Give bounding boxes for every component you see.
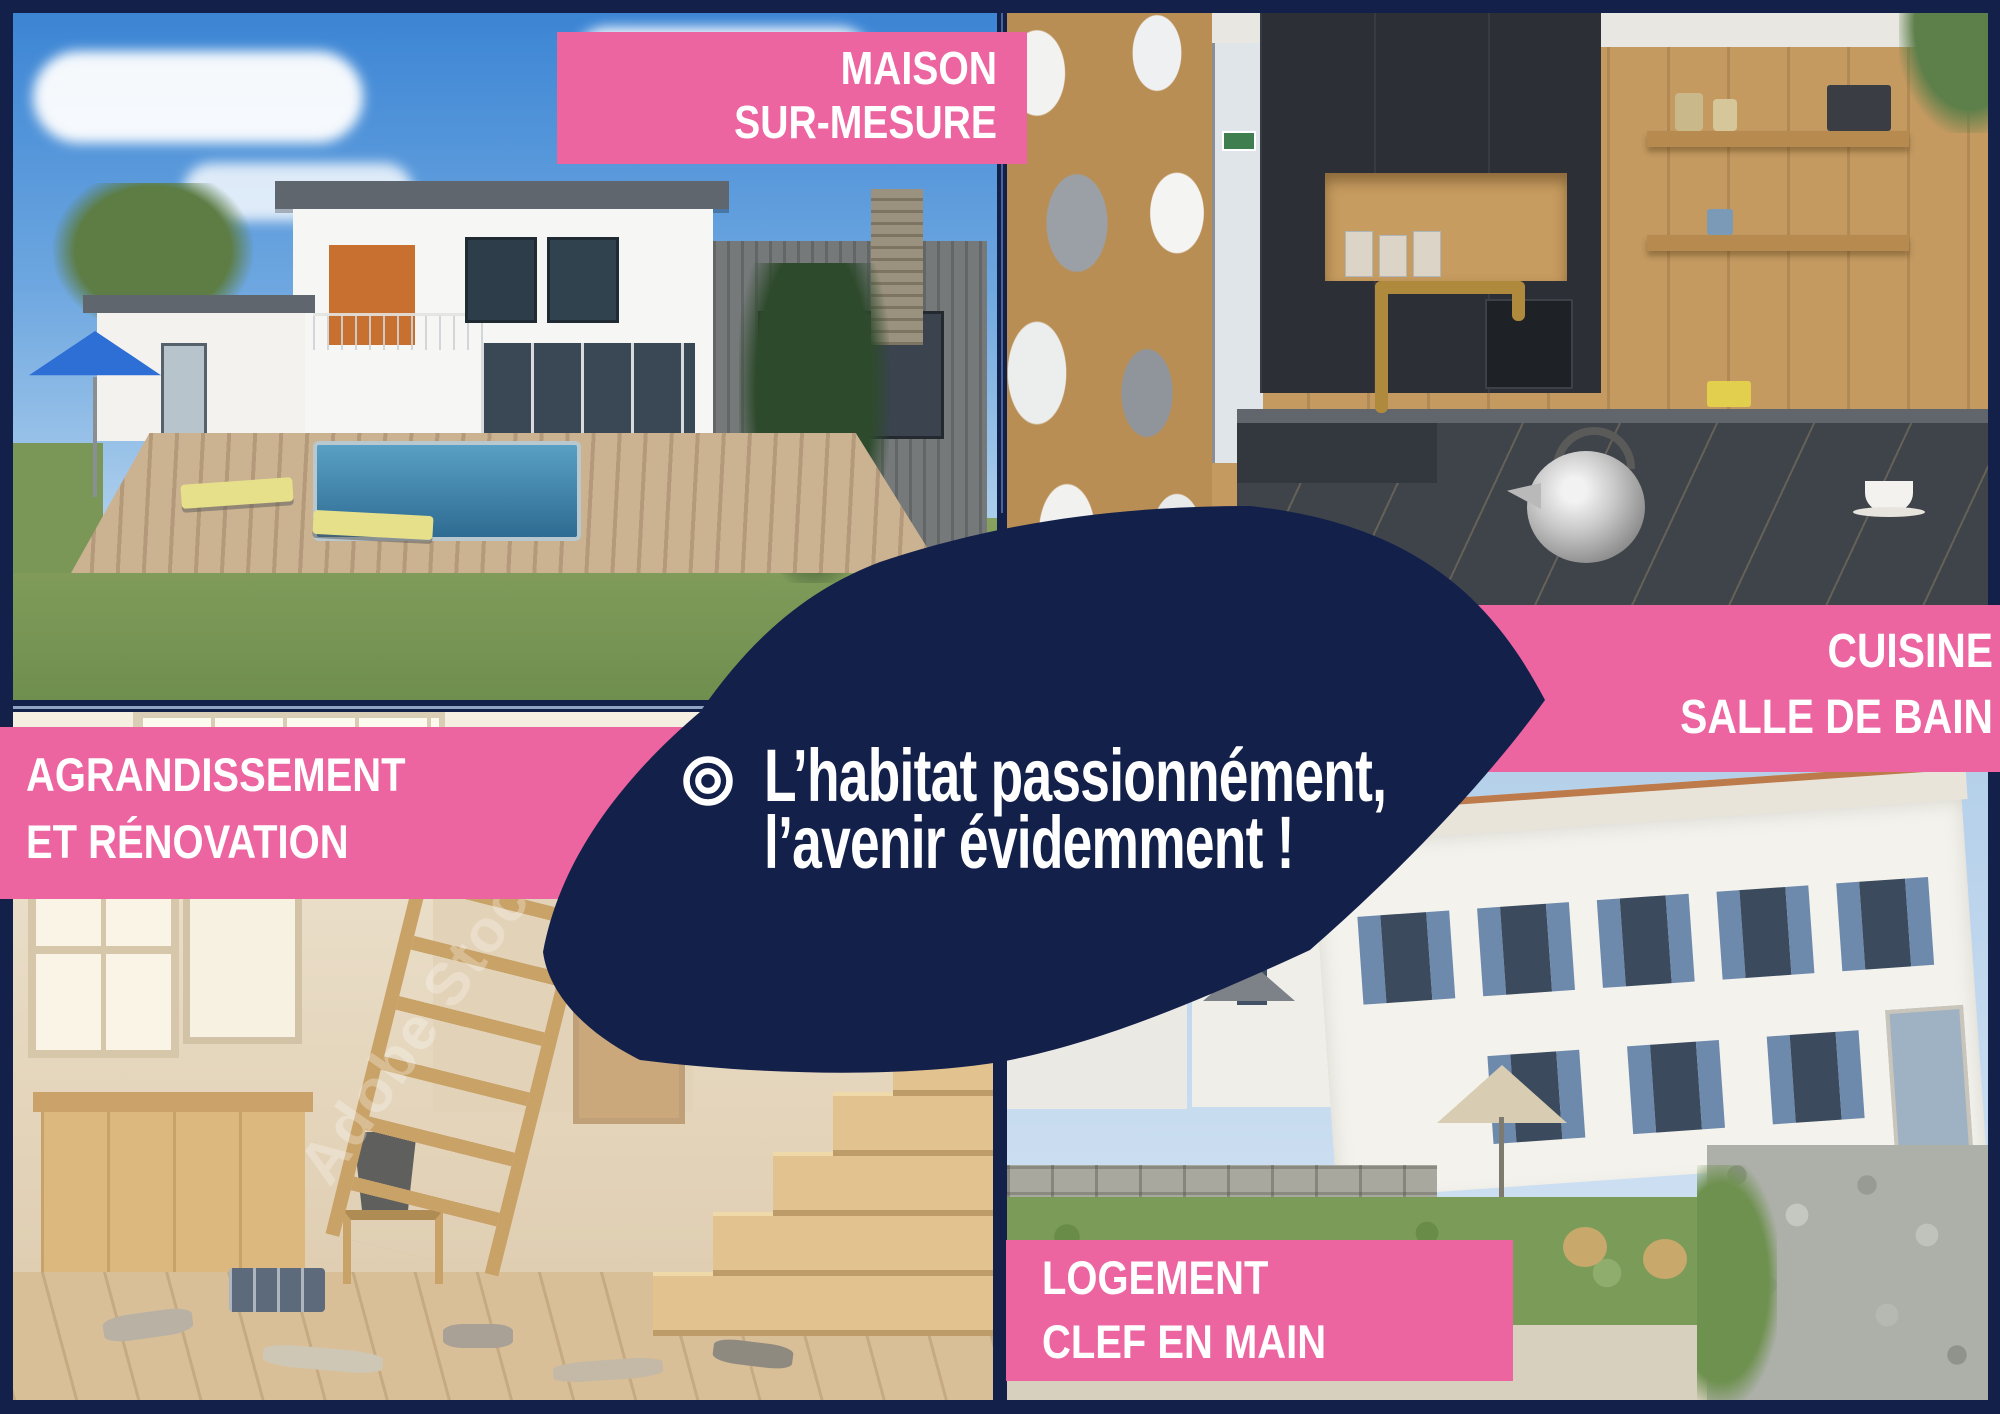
glass-door [1885,1005,1974,1168]
shuttered-window [1357,910,1455,1004]
shuttered-window [1716,885,1814,979]
banner-line: CUISINE [1472,619,1993,685]
island-counter [33,1092,313,1112]
stair-step [943,972,993,1036]
banner-line: LOGEMENT [1042,1246,1442,1310]
brass-faucet [1375,281,1525,294]
oven [1485,299,1573,389]
kitchen-island [41,1112,305,1272]
flat-roof [275,181,729,209]
wicker-chair [1643,1239,1687,1279]
wall-shelf [1647,235,1909,251]
banner-line: MAISON [623,41,997,95]
banner-logement-clef-en-main: LOGEMENT CLEF EN MAIN [1006,1240,1513,1381]
shuttered-window [1597,894,1695,988]
jar [1713,99,1737,131]
glass-doors [481,343,695,439]
parasol-pole [93,377,97,497]
banner-line: AGRANDISSEMENT [26,741,621,808]
door [161,343,207,445]
jar [1675,93,1703,131]
main-house [1309,765,1986,1199]
banner-maison-sur-mesure: MAISON SUR-MESURE [557,32,1027,164]
ivy [1697,1165,1777,1400]
shuttered-window [1627,1040,1726,1156]
divider-highlight-line [13,706,993,709]
banner-line: SUR-MESURE [623,95,997,149]
window [1047,975,1077,1019]
wing-roof [83,295,315,313]
glass-cup [1379,235,1407,277]
glass-cup [1413,231,1441,277]
house-row [1192,915,1337,1107]
house-row [1007,935,1187,1109]
saucer [1853,507,1925,517]
sponge [1707,381,1751,407]
laptop [1827,85,1891,131]
window [547,237,619,323]
banner-agrandissement-renovation: AGRANDISSEMENT ET RÉNOVATION [0,727,726,899]
cloud [33,51,363,143]
window [465,237,537,323]
brass-faucet [1512,281,1525,321]
banner-line: CLEF EN MAIN [1042,1310,1442,1374]
sink [1237,423,1437,483]
banner-line: SALLE DE BAIN [1472,685,1993,751]
exit-sign [1222,131,1256,151]
stair-step [833,1092,993,1156]
blue-cup [1707,209,1733,235]
countertop-edge [1237,409,1988,423]
glass-cup [1345,231,1373,277]
balcony-railing [313,313,483,350]
banner-cuisine-salle-de-bain: CUISINE SALLE DE BAIN [1380,605,2000,772]
flyer-canvas: Adobe Stock [0,0,2000,1414]
stair-step [893,1032,993,1096]
slogan-text: L’habitat passionnément, l’avenir évidem… [764,742,1386,876]
stair-step [773,1152,993,1216]
wicker-chair [1563,1227,1607,1267]
slogan-line-2: l’avenir évidemment ! [764,809,1386,876]
shuttered-window [1836,877,1934,971]
wall-shelf [1647,131,1909,147]
kettle [1527,451,1645,563]
debris [443,1324,513,1348]
target-circle-icon [680,753,736,809]
stair-step [653,1272,993,1336]
photo-kitchen [1007,13,1988,605]
hanging-plant [1899,13,1988,133]
slogan-line-1: L’habitat passionnément, [764,742,1386,809]
shuttered-window [1477,902,1575,996]
banner-line: ET RÉNOVATION [26,808,621,875]
stair-step [713,1212,993,1276]
brass-faucet [1375,281,1388,413]
wood-lattice-panel [1007,13,1212,605]
hallway [1212,43,1263,463]
shuttered-window [1767,1030,1866,1146]
window [1117,975,1147,1019]
paint-cans [229,1268,325,1312]
